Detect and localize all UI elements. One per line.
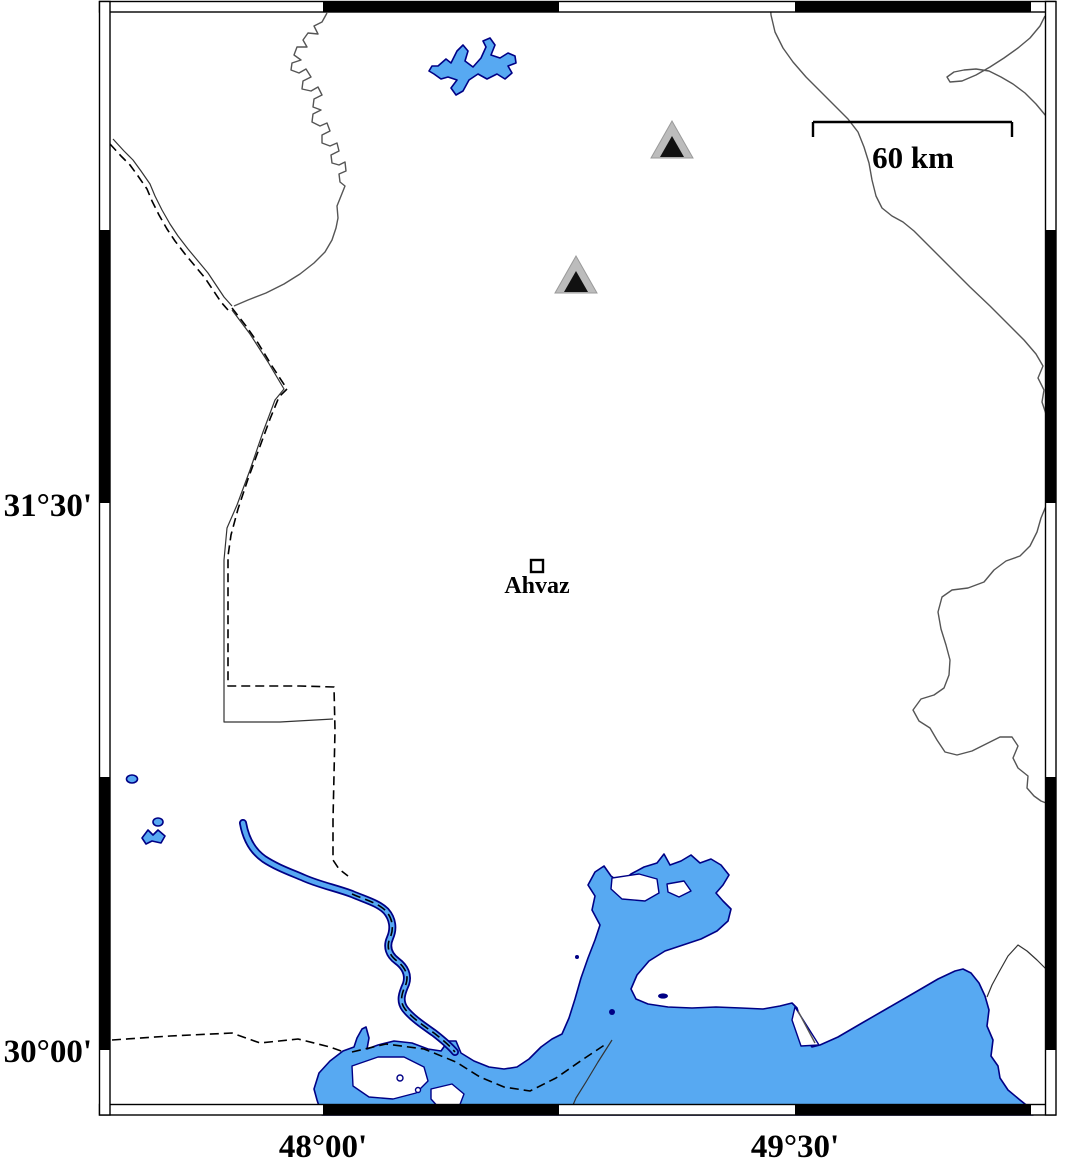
frame-bottom-black-1 bbox=[323, 1105, 559, 1116]
small-lake-1 bbox=[127, 775, 138, 783]
small-lake-3 bbox=[142, 830, 165, 844]
station-triangle-1 bbox=[651, 121, 693, 158]
lat-label-30-00: 30°00' bbox=[4, 1034, 92, 1070]
scale-bar-label: 60 km bbox=[872, 140, 954, 175]
frame-top-black-1 bbox=[323, 2, 559, 13]
map-svg: 60 km Ahvaz 31°30' 30°00' 48°00' 49°30' bbox=[0, 0, 1066, 1161]
estuary-islet-1 bbox=[397, 1075, 403, 1081]
frame-top-black-2 bbox=[795, 2, 1031, 13]
province-boundary-east bbox=[913, 506, 1046, 803]
border-southwest-dashed bbox=[112, 1033, 344, 1052]
estuary-islet-2 bbox=[416, 1088, 421, 1093]
station-triangle-2 bbox=[555, 256, 597, 293]
bay-islet-3 bbox=[575, 955, 579, 959]
frame-left-black-1 bbox=[100, 230, 111, 503]
bay-islet-2 bbox=[658, 993, 668, 998]
bay-islet-1 bbox=[609, 1009, 615, 1015]
border-west-dashed bbox=[228, 308, 348, 876]
border-west-solid bbox=[224, 310, 333, 722]
province-boundary-north bbox=[234, 13, 346, 306]
frame-left-black-2 bbox=[100, 777, 111, 1050]
scale-bar bbox=[813, 122, 1012, 137]
boundary-southeast bbox=[987, 945, 1046, 997]
frame-bottom-black-2 bbox=[795, 1105, 1031, 1116]
city-marker-ahvaz bbox=[531, 560, 543, 572]
river-top-right-corner bbox=[947, 16, 1046, 116]
river-northeast bbox=[770, 1, 1046, 414]
karun-river bbox=[243, 823, 455, 1052]
small-lake-2 bbox=[153, 818, 163, 826]
reservoir-lake bbox=[429, 38, 516, 95]
frame-right-black-2 bbox=[1046, 777, 1057, 1050]
lon-label-48-00: 48°00' bbox=[279, 1129, 367, 1161]
lat-label-31-30: 31°30' bbox=[4, 488, 92, 524]
border-nw-dashed bbox=[110, 144, 228, 310]
map-canvas: 60 km Ahvaz 31°30' 30°00' 48°00' 49°30' bbox=[0, 0, 1066, 1161]
border-nw-solid bbox=[113, 139, 232, 306]
city-label-ahvaz: Ahvaz bbox=[504, 573, 570, 599]
frame-right-black-1 bbox=[1046, 230, 1057, 503]
lon-label-49-30: 49°30' bbox=[751, 1129, 839, 1161]
karun-river-outline bbox=[243, 823, 455, 1052]
